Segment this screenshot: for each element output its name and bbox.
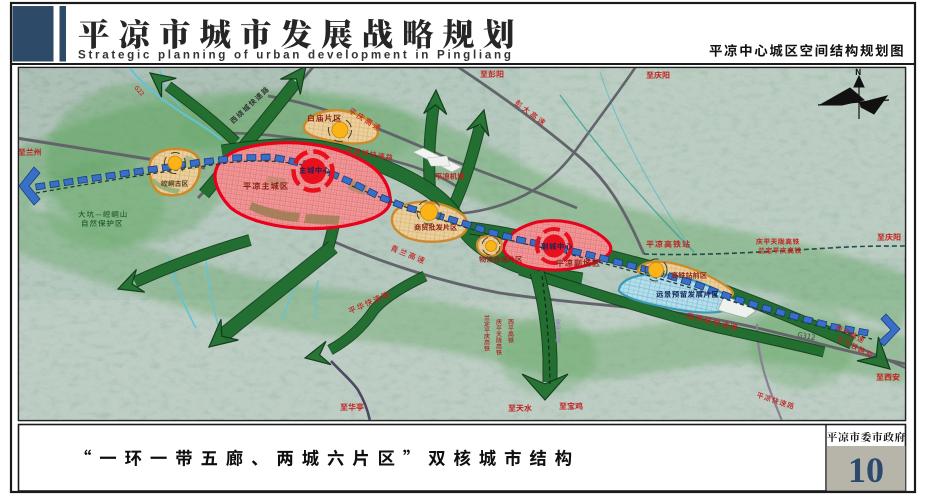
svg-text:Strategic planning of urban de: Strategic planning of urban development …: [78, 49, 512, 62]
svg-text:10: 10: [848, 450, 884, 490]
